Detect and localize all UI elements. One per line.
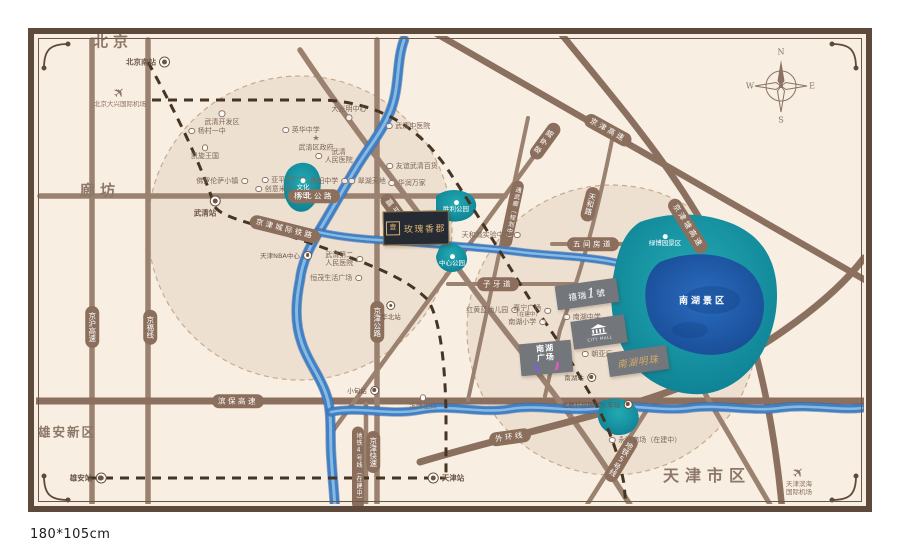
poi-dot-icon: [315, 153, 322, 160]
station-ring-icon: [587, 373, 596, 382]
airport-marker: ✈北京大兴国际机场: [94, 86, 146, 108]
government-star-icon: ★: [312, 134, 319, 142]
station-marker: 天津NBA中心: [260, 250, 312, 260]
plaza-crescent-icon: [533, 362, 560, 372]
road-pill: 滨保高速: [212, 394, 264, 408]
station-marker: 北京南站: [126, 57, 170, 68]
poi-dot-icon: [348, 178, 355, 185]
poi-label: 永旺商场（在建中）: [609, 436, 682, 444]
road-pill: 京津快速: [366, 431, 380, 473]
poi-dot-icon: [544, 308, 551, 315]
size-caption: 180*105cm: [30, 527, 110, 542]
station-ring-icon: [623, 400, 632, 409]
poi-dot-icon: [202, 144, 209, 151]
station-marker: 南湖站: [564, 372, 596, 382]
poi-dot-icon: [386, 123, 393, 130]
compass-w: W: [746, 82, 754, 91]
station-ring-icon: [303, 251, 312, 260]
road-pill: 京沪高速: [85, 306, 99, 348]
poi-dot-icon: [356, 256, 363, 263]
poi-dot-icon: [262, 177, 269, 184]
poi-dot-icon: [255, 186, 262, 193]
park-label: 绿博园景区: [649, 234, 682, 248]
poi-label: 杨村一中: [188, 127, 226, 135]
compass-icon: [755, 60, 807, 112]
poi-label: 翠湖天地: [348, 177, 386, 185]
poi-dot-icon: [388, 180, 395, 187]
park-label: 南湖景区: [679, 297, 727, 308]
station-marker: 小甸站: [347, 385, 379, 395]
station-marker: 北辰科技园区火车站: [562, 399, 633, 409]
region-label: 北京: [93, 31, 133, 52]
poi-label: 佛罗伦萨小镇: [196, 177, 248, 185]
station-ring-icon: [159, 57, 170, 68]
poi-label: 嘉宁广场（在建中）: [513, 304, 551, 318]
poi-label: 凯旋王国: [191, 144, 219, 160]
region-label: 雄安新区: [38, 422, 96, 441]
station-ring-icon: [387, 301, 396, 310]
poi-label: 天和城实验中学: [462, 231, 521, 239]
park-label: 文化公园: [297, 178, 310, 200]
compass-s: S: [778, 116, 783, 125]
poi-dot-icon: [346, 114, 353, 121]
poi-label: 大光明中心: [332, 105, 367, 121]
station-marker: 武清站: [204, 196, 227, 219]
station-ring-icon: [370, 386, 379, 395]
poi-label: 滨保出口: [409, 394, 437, 410]
poi-dot-icon: [188, 128, 195, 135]
project-plaque-rose: 壹 玫瑰香郡: [383, 210, 450, 245]
poi-dot-icon: [219, 110, 226, 117]
poi-dot-icon: [420, 394, 427, 401]
xirui-name: 禧瑞1號: [567, 284, 607, 304]
airport-marker: ✈天津滨海国际机场: [786, 466, 812, 496]
poi-dot-icon: [582, 351, 589, 358]
poi-label: 雍阳中学: [310, 177, 348, 185]
poi-dot-icon: [539, 319, 546, 326]
station-ring-icon: [428, 473, 439, 484]
poi-dot-icon: [609, 437, 616, 444]
road-pill: 子牙道: [477, 277, 519, 291]
compass-n: N: [778, 48, 785, 57]
road-pill: 京福线: [143, 310, 157, 345]
rose-logo-icon: 壹: [386, 221, 400, 235]
poi-dot-icon: [355, 275, 362, 282]
station-marker: 天津站: [428, 473, 465, 484]
station-ring-icon: [210, 196, 221, 207]
poi-dot-icon: [563, 314, 570, 321]
station-marker: 华北站: [381, 301, 401, 321]
region-label: 天津市区: [663, 462, 751, 486]
poi-label: 武清第二人民医院: [325, 251, 363, 267]
poi-dot-icon: [241, 178, 248, 185]
rose-project-name: 玫瑰香郡: [404, 221, 446, 235]
road-pill: 五间房道: [567, 237, 619, 251]
road-pill: 地铁4号线（在建中）: [352, 427, 364, 510]
poi-dot-icon: [386, 163, 393, 170]
pearl-name: 南湖明珠: [616, 351, 660, 371]
station-ring-icon: [95, 473, 106, 484]
poi-label: 武清开发区: [205, 110, 240, 126]
poi-dot-icon: [282, 127, 289, 134]
poi-label: 南湖小学: [508, 318, 546, 326]
poi-label: 友谊武清百货: [386, 162, 438, 170]
park-label: 中心公园: [439, 254, 465, 268]
poi-label: 恒茂生活广场: [310, 274, 362, 282]
poi-dot-icon: [514, 232, 521, 239]
poi-label: 武清中医院: [386, 122, 431, 130]
poi-label: 武清人民医院: [315, 148, 353, 164]
poi-label: 华润万家: [388, 179, 426, 187]
poi-label: 红黄蓝幼儿园: [466, 306, 518, 314]
region-label: 廊坊: [80, 180, 120, 201]
map-page: N E S W 北京廊坊雄安新区天津市区杨北公路滨保高速外环线子牙道五间房道京津…: [0, 0, 900, 558]
station-marker: 雄安站: [70, 473, 107, 484]
project-plaque-nanhu-plaza: 南湖 广场: [519, 340, 574, 376]
poi-label: 创意米兰: [255, 185, 293, 193]
compass-e: E: [809, 82, 815, 91]
poi-dot-icon: [341, 178, 348, 185]
